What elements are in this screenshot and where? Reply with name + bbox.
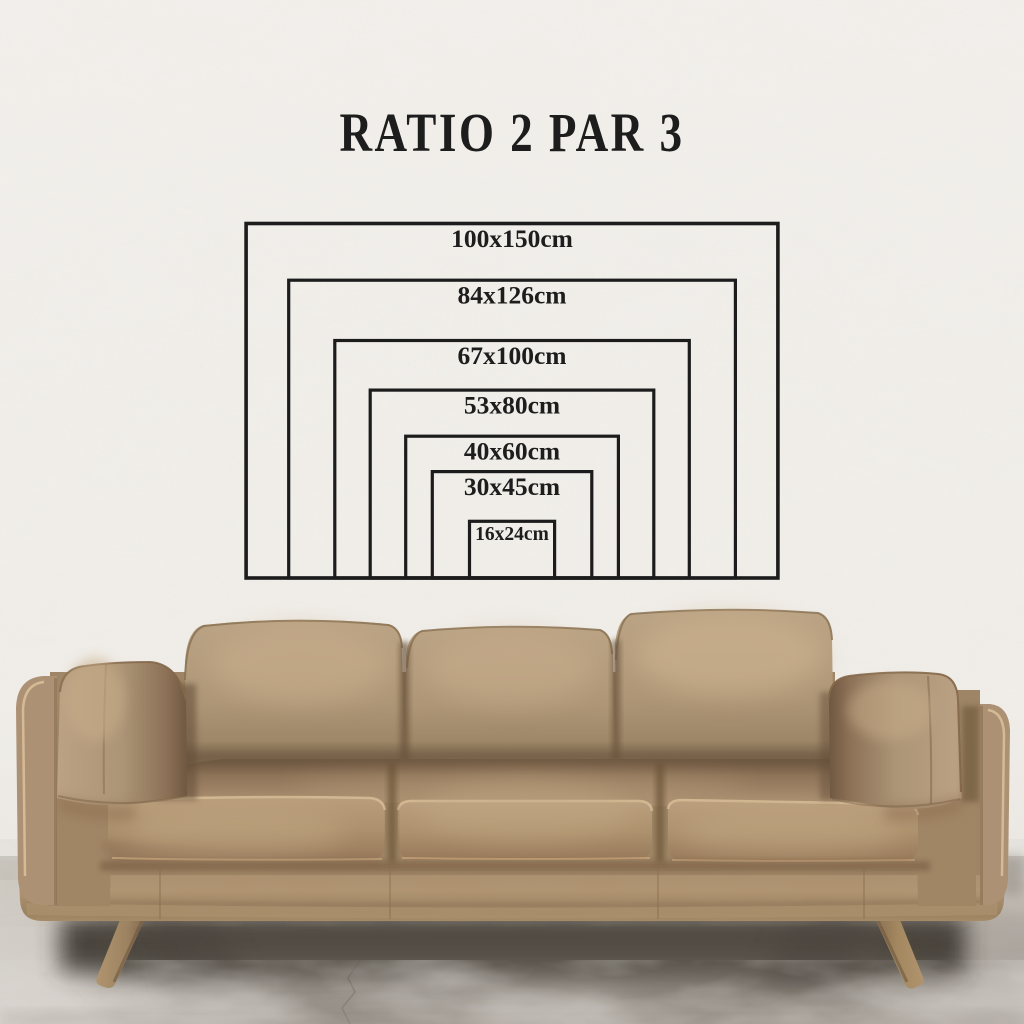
svg-text:84x126cm: 84x126cm xyxy=(457,281,566,310)
svg-text:RATIO 2 PAR 3: RATIO 2 PAR 3 xyxy=(340,102,685,163)
svg-text:40x60cm: 40x60cm xyxy=(464,437,560,466)
svg-text:16x24cm: 16x24cm xyxy=(475,524,549,545)
svg-text:100x150cm: 100x150cm xyxy=(451,224,573,253)
svg-text:67x100cm: 67x100cm xyxy=(457,341,566,370)
svg-text:30x45cm: 30x45cm xyxy=(464,472,560,501)
svg-text:53x80cm: 53x80cm xyxy=(464,391,560,420)
